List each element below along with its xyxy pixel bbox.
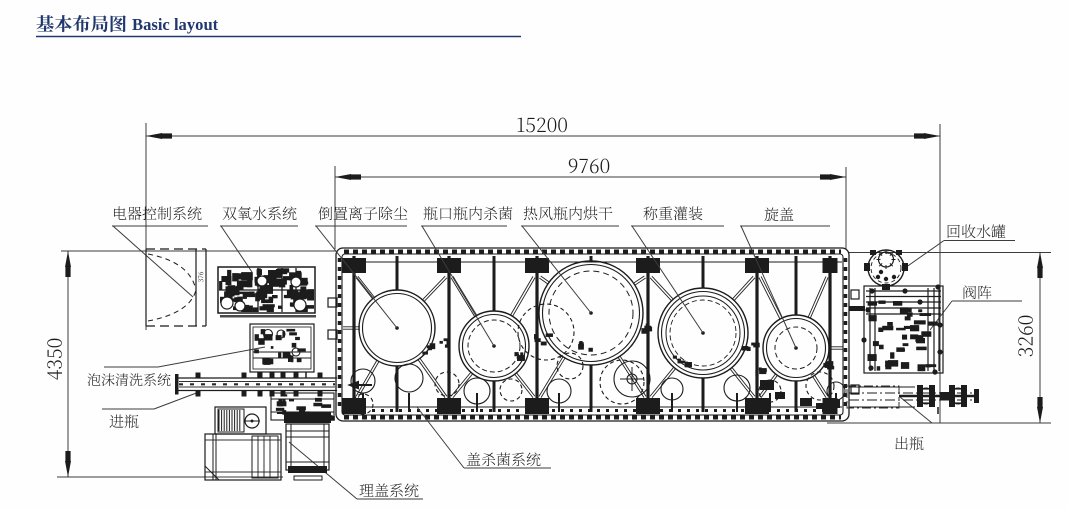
svg-text:Basic layout: Basic layout — [132, 15, 219, 34]
